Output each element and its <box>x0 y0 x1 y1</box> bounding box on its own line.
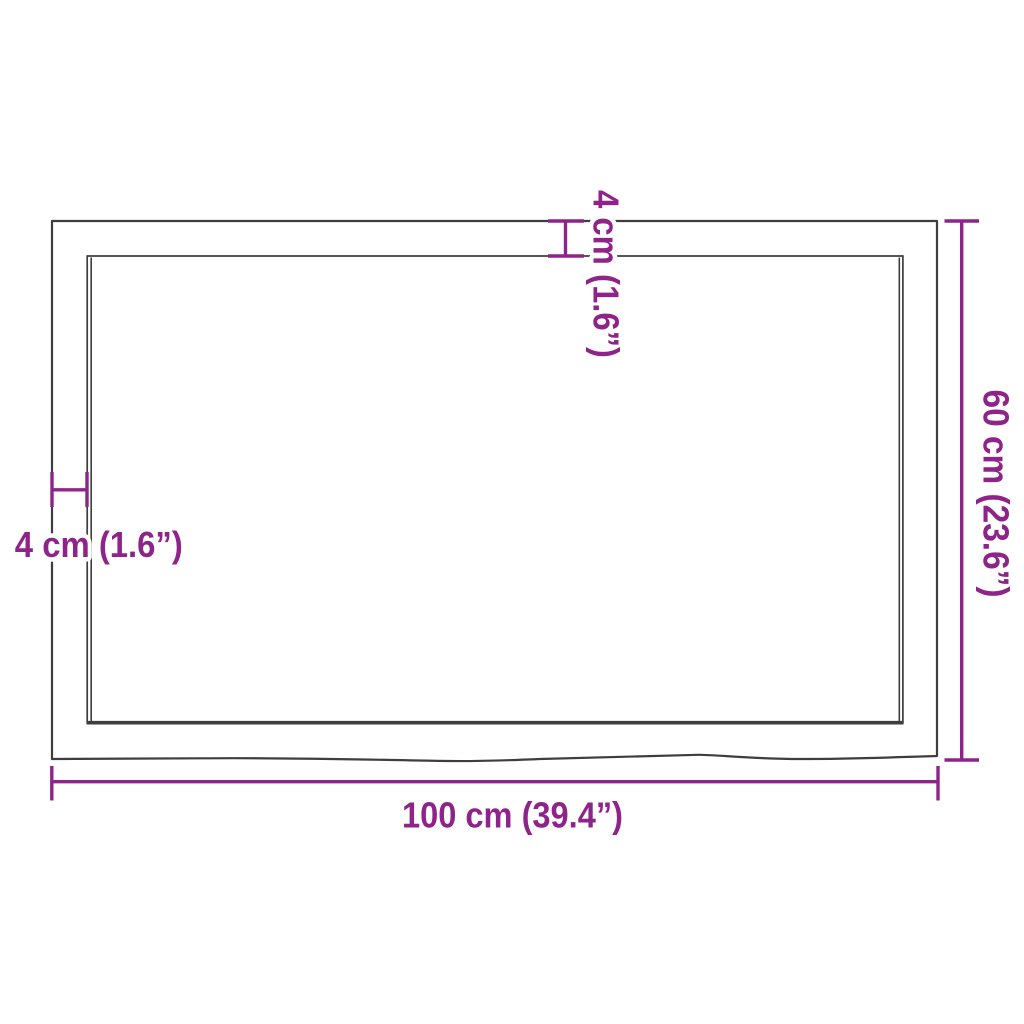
svg-text:4 cm (1.6”): 4 cm (1.6”) <box>586 190 627 358</box>
svg-text:100 cm (39.4”): 100 cm (39.4”) <box>402 795 623 836</box>
svg-text:4 cm (1.6”): 4 cm (1.6”) <box>15 524 183 565</box>
svg-text:60 cm (23.6”): 60 cm (23.6”) <box>976 390 1017 598</box>
